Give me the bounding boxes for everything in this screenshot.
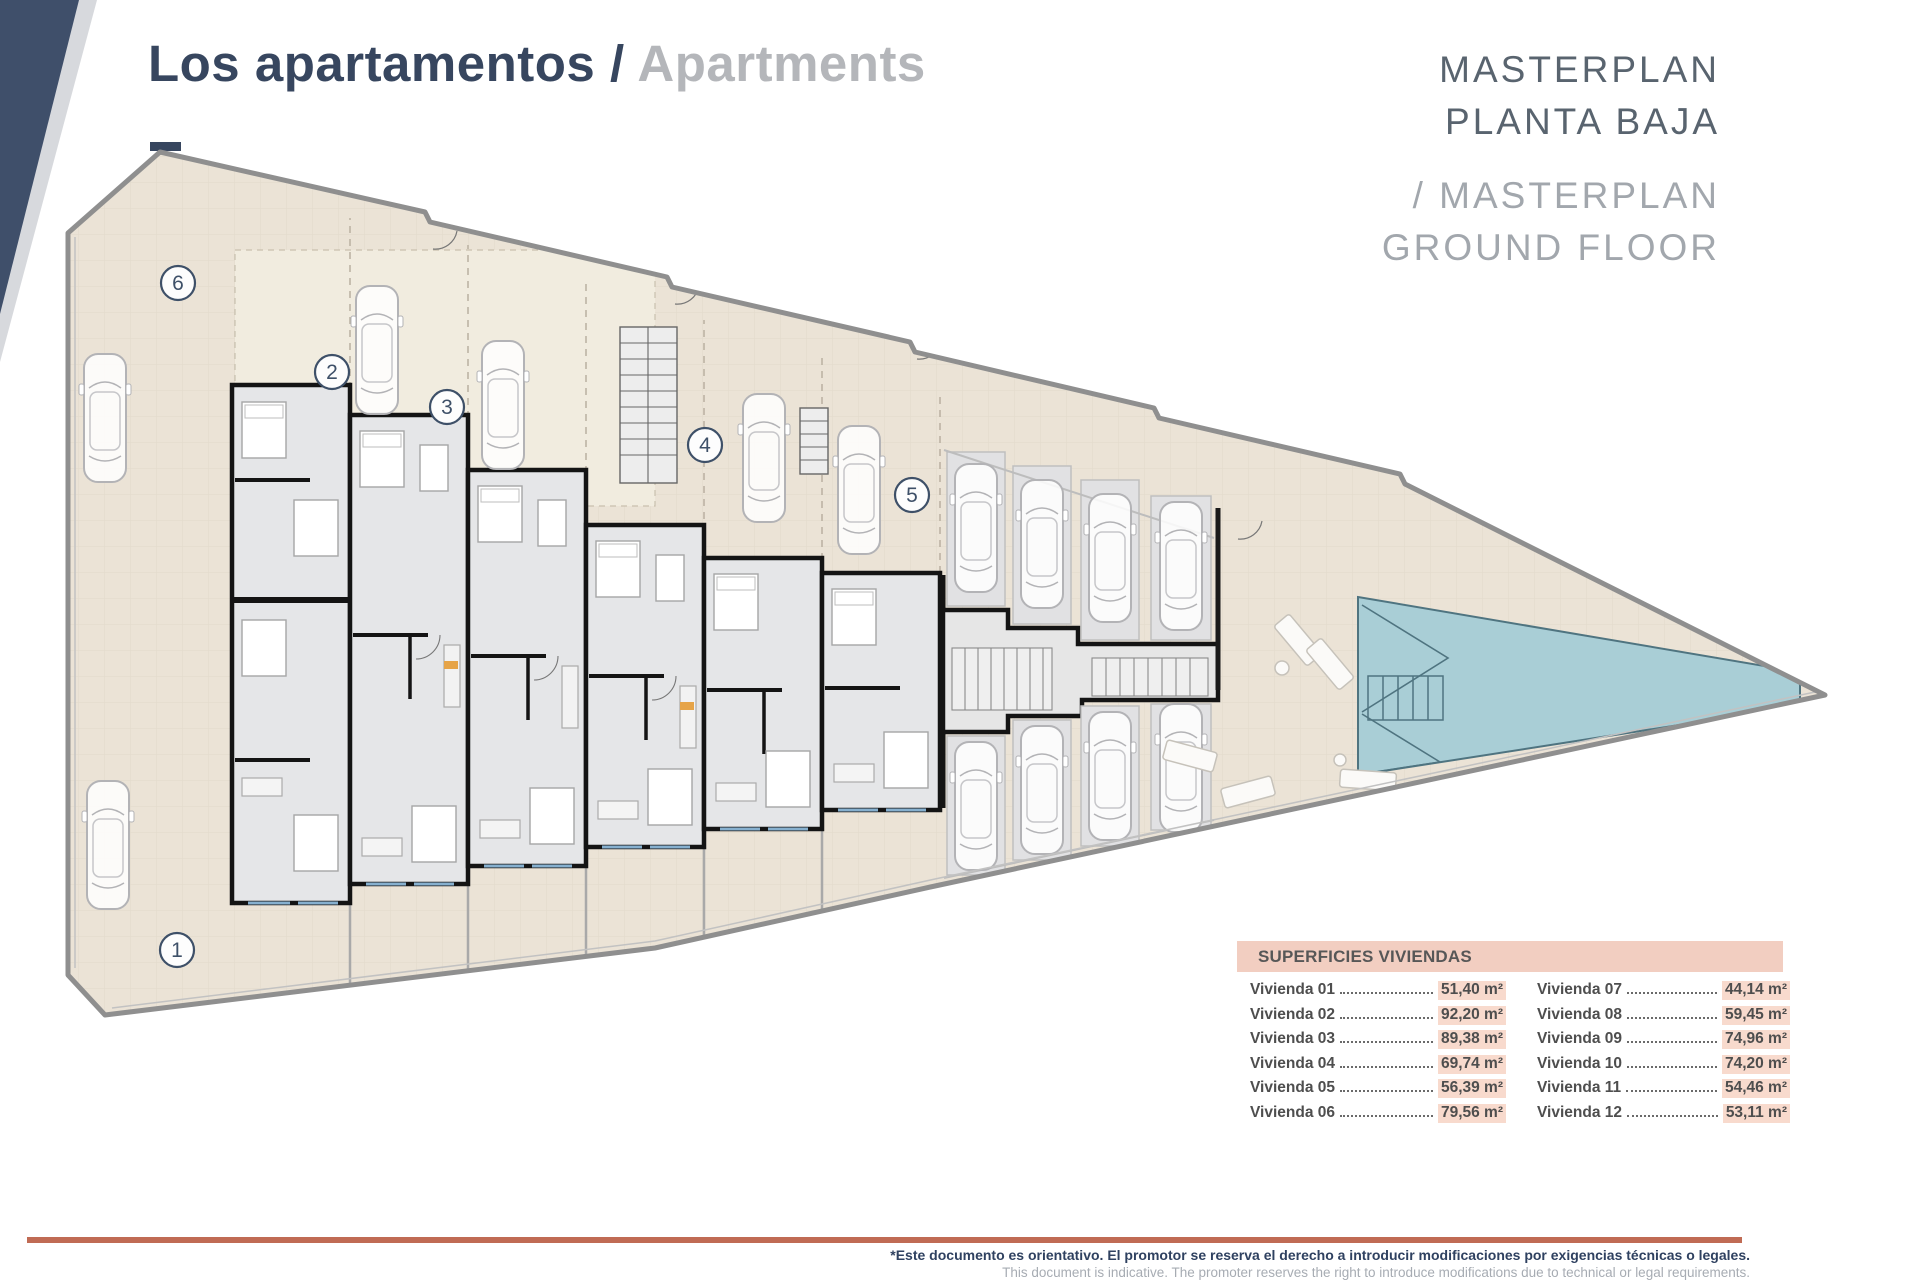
footer-disclaimer-en: This document is indicative. The promote… bbox=[890, 1264, 1750, 1280]
unit-area: 69,74 m² bbox=[1438, 1055, 1506, 1074]
footer-disclaimer: *Este documento es orientativo. El promo… bbox=[890, 1247, 1750, 1280]
table-row: Vivienda 0292,20 m² bbox=[1250, 1006, 1506, 1031]
svg-text:4: 4 bbox=[699, 434, 711, 457]
unit-label: Vivienda 04 bbox=[1250, 1055, 1335, 1073]
unit-label: Vivienda 12 bbox=[1537, 1104, 1622, 1122]
areas-table-title: SUPERFICIES VIVIENDAS bbox=[1237, 941, 1783, 972]
unit-area: 74,96 m² bbox=[1722, 1030, 1790, 1049]
table-row: Vivienda 0151,40 m² bbox=[1250, 981, 1506, 1006]
unit-label: Vivienda 11 bbox=[1537, 1079, 1621, 1097]
unit-badge-1: 1 bbox=[160, 933, 194, 967]
unit-area: 56,39 m² bbox=[1438, 1079, 1506, 1098]
table-row: Vivienda 0974,96 m² bbox=[1537, 1030, 1790, 1055]
unit-area: 79,56 m² bbox=[1438, 1104, 1506, 1123]
car-icon bbox=[1084, 494, 1136, 622]
svg-text:2: 2 bbox=[326, 361, 338, 384]
table-row: Vivienda 0469,74 m² bbox=[1250, 1055, 1506, 1080]
unit-label: Vivienda 01 bbox=[1250, 981, 1335, 999]
dotted-leader bbox=[1340, 1041, 1433, 1043]
unit-label: Vivienda 08 bbox=[1537, 1006, 1622, 1024]
table-row: Vivienda 1074,20 m² bbox=[1537, 1055, 1790, 1080]
table-row: Vivienda 0679,56 m² bbox=[1250, 1104, 1506, 1129]
car-icon bbox=[950, 464, 1002, 592]
svg-text:5: 5 bbox=[906, 484, 918, 507]
unit-area: 44,14 m² bbox=[1722, 981, 1790, 1000]
car-icon bbox=[950, 742, 1002, 870]
unit-badge-6: 6 bbox=[161, 266, 195, 300]
unit-area: 59,45 m² bbox=[1722, 1006, 1790, 1025]
car-icon bbox=[1016, 480, 1068, 608]
car-icon bbox=[1016, 726, 1068, 854]
unit-3-interior bbox=[468, 470, 586, 866]
footer-accent-line bbox=[27, 1237, 1742, 1243]
unit-label: Vivienda 09 bbox=[1537, 1030, 1622, 1048]
unit-label: Vivienda 06 bbox=[1250, 1104, 1335, 1122]
unit-4-interior bbox=[586, 525, 704, 847]
unit-badge-4: 4 bbox=[688, 428, 722, 462]
dotted-leader bbox=[1627, 1115, 1718, 1117]
unit-2-interior bbox=[350, 415, 468, 884]
unit-badge-3: 3 bbox=[430, 390, 464, 424]
svg-text:3: 3 bbox=[441, 396, 453, 419]
unit-area: 74,20 m² bbox=[1722, 1055, 1790, 1074]
unit-area: 54,46 m² bbox=[1722, 1079, 1790, 1098]
car-icon bbox=[351, 286, 403, 414]
dotted-leader bbox=[1627, 1017, 1717, 1019]
dotted-leader bbox=[1627, 1066, 1717, 1068]
dotted-leader bbox=[1340, 992, 1433, 994]
dotted-leader bbox=[1627, 1041, 1717, 1043]
svg-text:6: 6 bbox=[172, 272, 184, 295]
unit-area: 53,11 m² bbox=[1723, 1104, 1790, 1123]
table-row: Vivienda 0744,14 m² bbox=[1537, 981, 1790, 1006]
unit-area: 89,38 m² bbox=[1438, 1030, 1506, 1049]
car-icon bbox=[1084, 712, 1136, 840]
dotted-leader bbox=[1340, 1090, 1433, 1092]
unit-6-1-interior bbox=[232, 385, 350, 903]
table-row: Vivienda 1253,11 m² bbox=[1537, 1104, 1790, 1129]
car-icon bbox=[79, 354, 131, 482]
unit-badge-2: 2 bbox=[315, 355, 349, 389]
unit-label: Vivienda 10 bbox=[1537, 1055, 1622, 1073]
dotted-leader bbox=[1340, 1115, 1433, 1117]
svg-text:1: 1 bbox=[171, 939, 183, 962]
areas-table-col1: Vivienda 0151,40 m² Vivienda 0292,20 m² … bbox=[1250, 981, 1506, 1129]
unit-badge-5: 5 bbox=[895, 478, 929, 512]
unit-5-interior-right bbox=[822, 573, 940, 810]
unit-5-interior-left bbox=[704, 558, 822, 829]
unit-area: 92,20 m² bbox=[1438, 1006, 1506, 1025]
table-row: Vivienda 0556,39 m² bbox=[1250, 1079, 1506, 1104]
unit-label: Vivienda 02 bbox=[1250, 1006, 1335, 1024]
footer-disclaimer-es: *Este documento es orientativo. El promo… bbox=[890, 1247, 1750, 1264]
unit-label: Vivienda 07 bbox=[1537, 981, 1622, 999]
unit-area: 51,40 m² bbox=[1438, 981, 1506, 1000]
dotted-leader bbox=[1340, 1017, 1433, 1019]
car-icon bbox=[833, 426, 885, 554]
unit-label: Vivienda 03 bbox=[1250, 1030, 1335, 1048]
areas-table-col2: Vivienda 0744,14 m² Vivienda 0859,45 m² … bbox=[1537, 981, 1790, 1129]
car-icon bbox=[738, 394, 790, 522]
dotted-leader bbox=[1626, 1090, 1717, 1092]
table-row: Vivienda 0859,45 m² bbox=[1537, 1006, 1790, 1031]
car-icon bbox=[82, 781, 134, 909]
areas-table: SUPERFICIES VIVIENDAS Vivienda 0151,40 m… bbox=[1237, 941, 1793, 1129]
car-icon bbox=[1155, 502, 1207, 630]
brochure-page: Los apartamentos / Apartments MASTERPLAN… bbox=[0, 0, 1920, 1280]
table-row: Vivienda 0389,38 m² bbox=[1250, 1030, 1506, 1055]
dotted-leader bbox=[1627, 992, 1717, 994]
table-row: Vivienda 1154,46 m² bbox=[1537, 1079, 1790, 1104]
unit-label: Vivienda 05 bbox=[1250, 1079, 1335, 1097]
car-icon bbox=[477, 341, 529, 469]
dotted-leader bbox=[1340, 1066, 1433, 1068]
